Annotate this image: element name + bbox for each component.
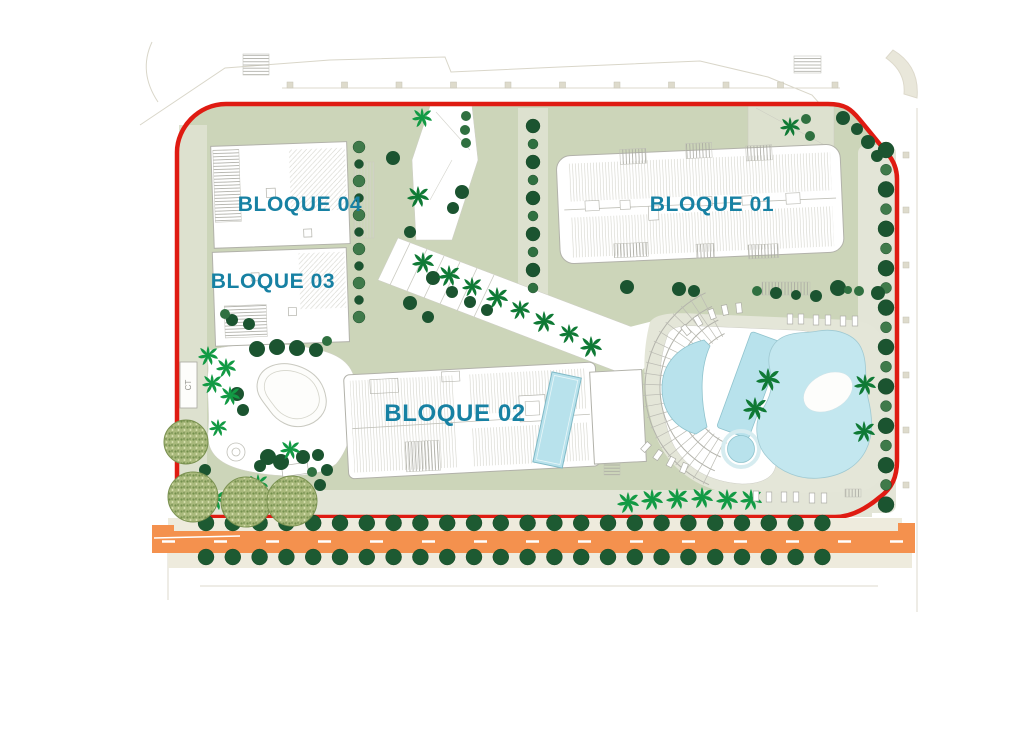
- tree-mid-column: [528, 247, 538, 257]
- tree-street-bottom: [359, 549, 375, 565]
- label-bloque-04: BLOQUE 04: [238, 193, 362, 216]
- tree-round: [851, 123, 863, 135]
- tree-street-top: [680, 515, 696, 531]
- tree-round: [672, 282, 686, 296]
- tree-round: [805, 131, 815, 141]
- tree-street-bottom: [225, 549, 241, 565]
- tree-inner-column: [353, 243, 365, 255]
- tree-round: [791, 290, 801, 300]
- tree-street-bottom: [814, 549, 830, 565]
- tree-inner-column: [353, 277, 365, 289]
- tree-round: [307, 467, 317, 477]
- tree-round: [481, 304, 493, 316]
- tree-street-bottom: [546, 549, 562, 565]
- tree-right-column: [881, 401, 892, 412]
- tree-right-column: [878, 339, 894, 355]
- tree-inner-column: [355, 160, 364, 169]
- tree-inner-column: [355, 228, 364, 237]
- sunbed: [736, 303, 743, 314]
- sunbed: [793, 492, 799, 502]
- tree-street-bottom: [386, 549, 402, 565]
- tree-round: [426, 271, 440, 285]
- tree-street-top: [814, 515, 830, 531]
- sunbed: [787, 314, 793, 324]
- tree-speckled-canopy: [168, 472, 218, 522]
- tree-mid-column: [526, 191, 540, 205]
- tree-round: [249, 341, 265, 357]
- street-lamp: [832, 82, 838, 88]
- tree-round: [254, 460, 266, 472]
- sunbed: [781, 492, 787, 502]
- pergola-corner: [845, 489, 861, 497]
- tree-round: [770, 287, 782, 299]
- tree-street-top: [493, 515, 509, 531]
- label-bloque-02: BLOQUE 02: [384, 400, 525, 427]
- tree-street-top: [600, 515, 616, 531]
- street-lamp: [903, 427, 909, 433]
- tree-round: [810, 290, 822, 302]
- tree-mid-column: [526, 227, 540, 241]
- tree-street-bottom: [252, 549, 268, 565]
- crosswalk-top-right: [794, 56, 821, 73]
- tree-right-column: [881, 204, 892, 215]
- sunbed: [798, 314, 804, 324]
- tree-round: [455, 185, 469, 199]
- tree-inner-column: [353, 141, 365, 153]
- tree-street-bottom: [600, 549, 616, 565]
- street-lamp: [903, 152, 909, 158]
- tree-street-bottom: [680, 549, 696, 565]
- tree-street-top: [788, 515, 804, 531]
- tree-right-column: [878, 378, 894, 394]
- tree-round: [830, 280, 846, 296]
- tree-inner-column: [355, 262, 364, 271]
- tree-round: [861, 135, 875, 149]
- tree-round: [403, 296, 417, 310]
- tree-street-bottom: [332, 549, 348, 565]
- tree-round: [309, 343, 323, 357]
- street-lamp: [903, 317, 909, 323]
- tree-street-top: [734, 515, 750, 531]
- site-plan-page: BLOQUE 04 BLOQUE 03 BLOQUE 01 BLOQUE 02 …: [0, 0, 1024, 732]
- tree-round: [322, 336, 332, 346]
- street-lamp: [669, 82, 675, 88]
- tree-mid-column: [528, 283, 538, 293]
- tree-right-column: [881, 440, 892, 451]
- sunbed: [840, 316, 846, 326]
- street-lamp: [342, 82, 348, 88]
- tree-street-bottom: [439, 549, 455, 565]
- street-lamp: [723, 82, 729, 88]
- site-plan-canvas: BLOQUE 04 BLOQUE 03 BLOQUE 01 BLOQUE 02 …: [0, 0, 1024, 732]
- tree-round: [460, 125, 470, 135]
- tree-round: [269, 339, 285, 355]
- street-lamp: [505, 82, 511, 88]
- tree-street-top: [707, 515, 723, 531]
- tree-street-top: [520, 515, 536, 531]
- street-lamp: [614, 82, 620, 88]
- sunbed: [809, 493, 815, 503]
- tree-mid-column: [528, 211, 538, 221]
- tree-street-bottom: [520, 549, 536, 565]
- tree-round: [752, 286, 762, 296]
- tree-street-top: [546, 515, 562, 531]
- tree-right-column: [881, 361, 892, 372]
- label-bloque-01: BLOQUE 01: [650, 193, 774, 216]
- tree-round: [854, 286, 864, 296]
- tree-street-top: [654, 515, 670, 531]
- street-lamp: [451, 82, 457, 88]
- tree-street-top: [359, 515, 375, 531]
- sunbed: [813, 315, 819, 325]
- sunbed: [825, 315, 831, 325]
- tree-right-column: [881, 243, 892, 254]
- street-lamp: [778, 82, 784, 88]
- tree-mid-column: [526, 119, 540, 133]
- tree-speckled-canopy: [164, 420, 208, 464]
- tree-street-top: [439, 515, 455, 531]
- tree-mid-column: [526, 263, 540, 277]
- tree-street-bottom: [305, 549, 321, 565]
- sunbed: [766, 492, 772, 502]
- tree-mid-column: [526, 155, 540, 169]
- tree-street-top: [761, 515, 777, 531]
- tree-round: [220, 309, 230, 319]
- street-lamp: [903, 372, 909, 378]
- tree-right-column: [881, 322, 892, 333]
- street-lamp: [903, 262, 909, 268]
- tree-round: [836, 111, 850, 125]
- tree-round: [461, 138, 471, 148]
- road-tab-right: [898, 523, 915, 531]
- tree-street-top: [627, 515, 643, 531]
- tree-street-bottom: [412, 549, 428, 565]
- pergola-top: [762, 282, 810, 295]
- tree-street-bottom: [493, 549, 509, 565]
- tree-round: [243, 318, 255, 330]
- tree-street-bottom: [466, 549, 482, 565]
- tree-right-column: [878, 221, 894, 237]
- bloque-03-building: [212, 248, 349, 347]
- tree-round: [422, 311, 434, 323]
- tree-street-top: [386, 515, 402, 531]
- tree-street-bottom: [734, 549, 750, 565]
- tree-street-bottom: [654, 549, 670, 565]
- tree-street-top: [466, 515, 482, 531]
- tree-street-bottom: [627, 549, 643, 565]
- sunbed: [852, 316, 858, 326]
- street-lamp: [396, 82, 402, 88]
- tree-round: [871, 150, 883, 162]
- street-lamp: [560, 82, 566, 88]
- tree-round: [404, 226, 416, 238]
- tree-right-column: [881, 479, 892, 490]
- tree-round: [312, 449, 324, 461]
- tree-mid-column: [528, 175, 538, 185]
- tree-round: [386, 151, 400, 165]
- tree-street-bottom: [788, 549, 804, 565]
- label-ct: CT: [184, 380, 193, 391]
- crosswalk-top-left: [243, 54, 269, 75]
- tree-street-top: [332, 515, 348, 531]
- tree-street-top: [412, 515, 428, 531]
- tree-street-bottom: [573, 549, 589, 565]
- tree-right-column: [878, 300, 894, 316]
- tree-street-top: [573, 515, 589, 531]
- tree-street-bottom: [707, 549, 723, 565]
- tree-street-bottom: [278, 549, 294, 565]
- tree-speckled-canopy: [267, 476, 317, 526]
- tree-round: [620, 280, 634, 294]
- tree-right-column: [878, 497, 894, 513]
- tree-round: [688, 285, 700, 297]
- tree-round: [464, 296, 476, 308]
- tree-right-column: [881, 164, 892, 175]
- street-lamp: [903, 482, 909, 488]
- tree-round: [801, 114, 811, 124]
- tree-round: [321, 464, 333, 476]
- tree-round: [237, 404, 249, 416]
- tree-round: [871, 286, 885, 300]
- tree-inner-column: [355, 296, 364, 305]
- tree-right-column: [878, 260, 894, 276]
- sunbed: [821, 493, 827, 503]
- tree-mid-column: [528, 139, 538, 149]
- tree-right-column: [878, 181, 894, 197]
- outside-curve-topright: [886, 50, 917, 98]
- tree-street-bottom: [761, 549, 777, 565]
- tree-speckled-canopy: [221, 477, 271, 527]
- road-tab-left: [152, 525, 174, 532]
- sunbed: [753, 491, 759, 501]
- tree-round: [447, 202, 459, 214]
- tree-street-bottom: [198, 549, 214, 565]
- fountain-outer: [227, 443, 245, 461]
- street-lamp: [903, 207, 909, 213]
- tree-inner-column: [353, 175, 365, 187]
- label-bloque-03: BLOQUE 03: [211, 270, 335, 293]
- tree-round: [446, 286, 458, 298]
- tree-inner-column: [353, 311, 365, 323]
- street-lamp: [287, 82, 293, 88]
- tree-round: [844, 286, 852, 294]
- tree-round: [314, 479, 326, 491]
- tree-right-column: [878, 457, 894, 473]
- tree-right-column: [878, 418, 894, 434]
- tree-round: [289, 340, 305, 356]
- round-pool: [728, 436, 755, 463]
- tree-round: [461, 111, 471, 121]
- outside-curve-left: [146, 42, 158, 102]
